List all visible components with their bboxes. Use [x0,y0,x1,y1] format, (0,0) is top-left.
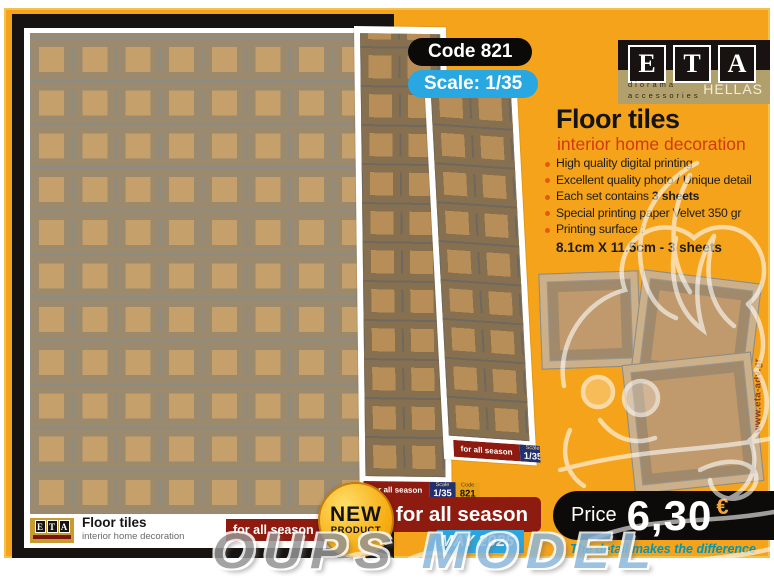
loose-tile-3 [622,352,765,495]
logo-letter: T [47,520,58,533]
product-subtitle: interior home decoration [557,134,746,155]
code-badge: Code 821 [408,38,532,66]
website-url: www.eta-adv.gr [753,350,764,442]
logo-tagline-line1: diorama [628,80,701,91]
tile-grid-angled-2 [430,85,529,441]
bullet-icon [545,195,550,200]
logo-letter: E [628,45,666,83]
logo-tagline: diorama accessories [628,80,701,101]
sheet-footer-subtitle: interior home decoration [82,531,184,542]
bullet-icon [545,178,550,183]
feature-list: High quality digital printing Excellent … [545,157,771,255]
eta-logo: E T A diorama accessories HELLAS [618,40,770,104]
season-chip: for all season [453,440,520,462]
product-title: Floor tiles [556,104,680,135]
feature-item: Printing surface : [545,223,771,236]
watermark-part1: OUPS [212,523,399,579]
product-promo-image: E T A Floor tiles interior home decorati… [0,0,774,581]
sheet-label-strip: for all season Scale 1/35 Code 821 [453,440,540,463]
bullet-icon [545,211,550,216]
feature-item: Special printing paper Velvet 350 gr [545,207,771,220]
surface-size: 8.1cm X 11.5cm - 3 sheets [556,240,771,255]
store-watermark: OUPS MODEL [212,522,659,580]
eta-mini-logo: E T A [30,518,74,543]
feature-item: Each set contains 3 sheets [545,190,771,203]
bullet-icon [545,228,550,233]
bullet-icon [545,162,550,167]
tile-grid-large [30,33,376,514]
scale-chip: Scale 1/35 [519,444,540,462]
tile-sheet-large: E T A Floor tiles interior home decorati… [12,14,394,558]
logo-letters: E T A [628,45,756,83]
eta-mini-letters: E T A [35,520,70,533]
logo-letter: A [718,45,756,83]
logo-region: HELLAS [703,81,763,97]
feature-item: Excellent quality photo / Unique detail [545,174,771,187]
sheet-footer-title: Floor tiles [82,515,147,530]
logo-letter: E [35,520,46,533]
scale-value: 1/35 [523,451,540,462]
feature-item: High quality digital printing [545,157,771,170]
mini-logo-band [33,535,71,539]
logo-letter: T [673,45,711,83]
scale-badge: Scale: 1/35 [408,70,538,98]
logo-letter: A [59,520,70,533]
logo-tagline-line2: accessories [628,91,701,102]
watermark-part2: MODEL [422,523,659,579]
euro-currency-symbol: € [716,494,728,520]
tile-sheet-paper: E T A Floor tiles interior home decorati… [24,28,382,548]
loose-tile-1 [538,270,641,369]
